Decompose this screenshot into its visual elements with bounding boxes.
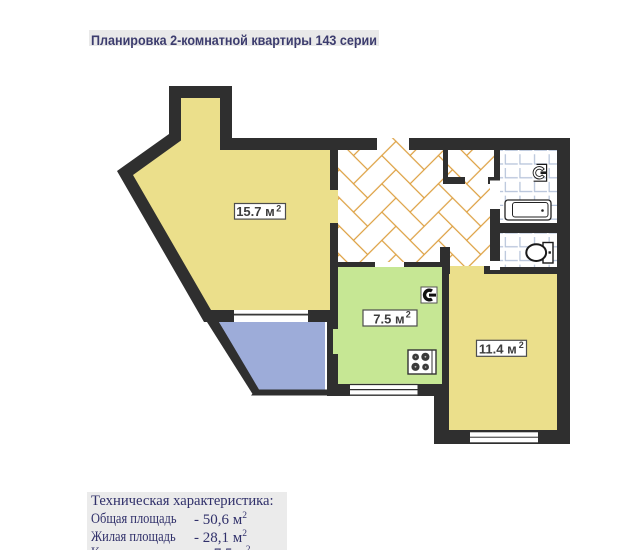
svg-text:2: 2 [519,340,524,350]
svg-text:15.7 м: 15.7 м [236,204,275,219]
svg-text:11.4 м: 11.4 м [479,342,517,357]
svg-text:2: 2 [276,204,281,214]
svg-text:7.5 м: 7.5 м [373,312,404,327]
svg-text:2: 2 [406,310,411,320]
